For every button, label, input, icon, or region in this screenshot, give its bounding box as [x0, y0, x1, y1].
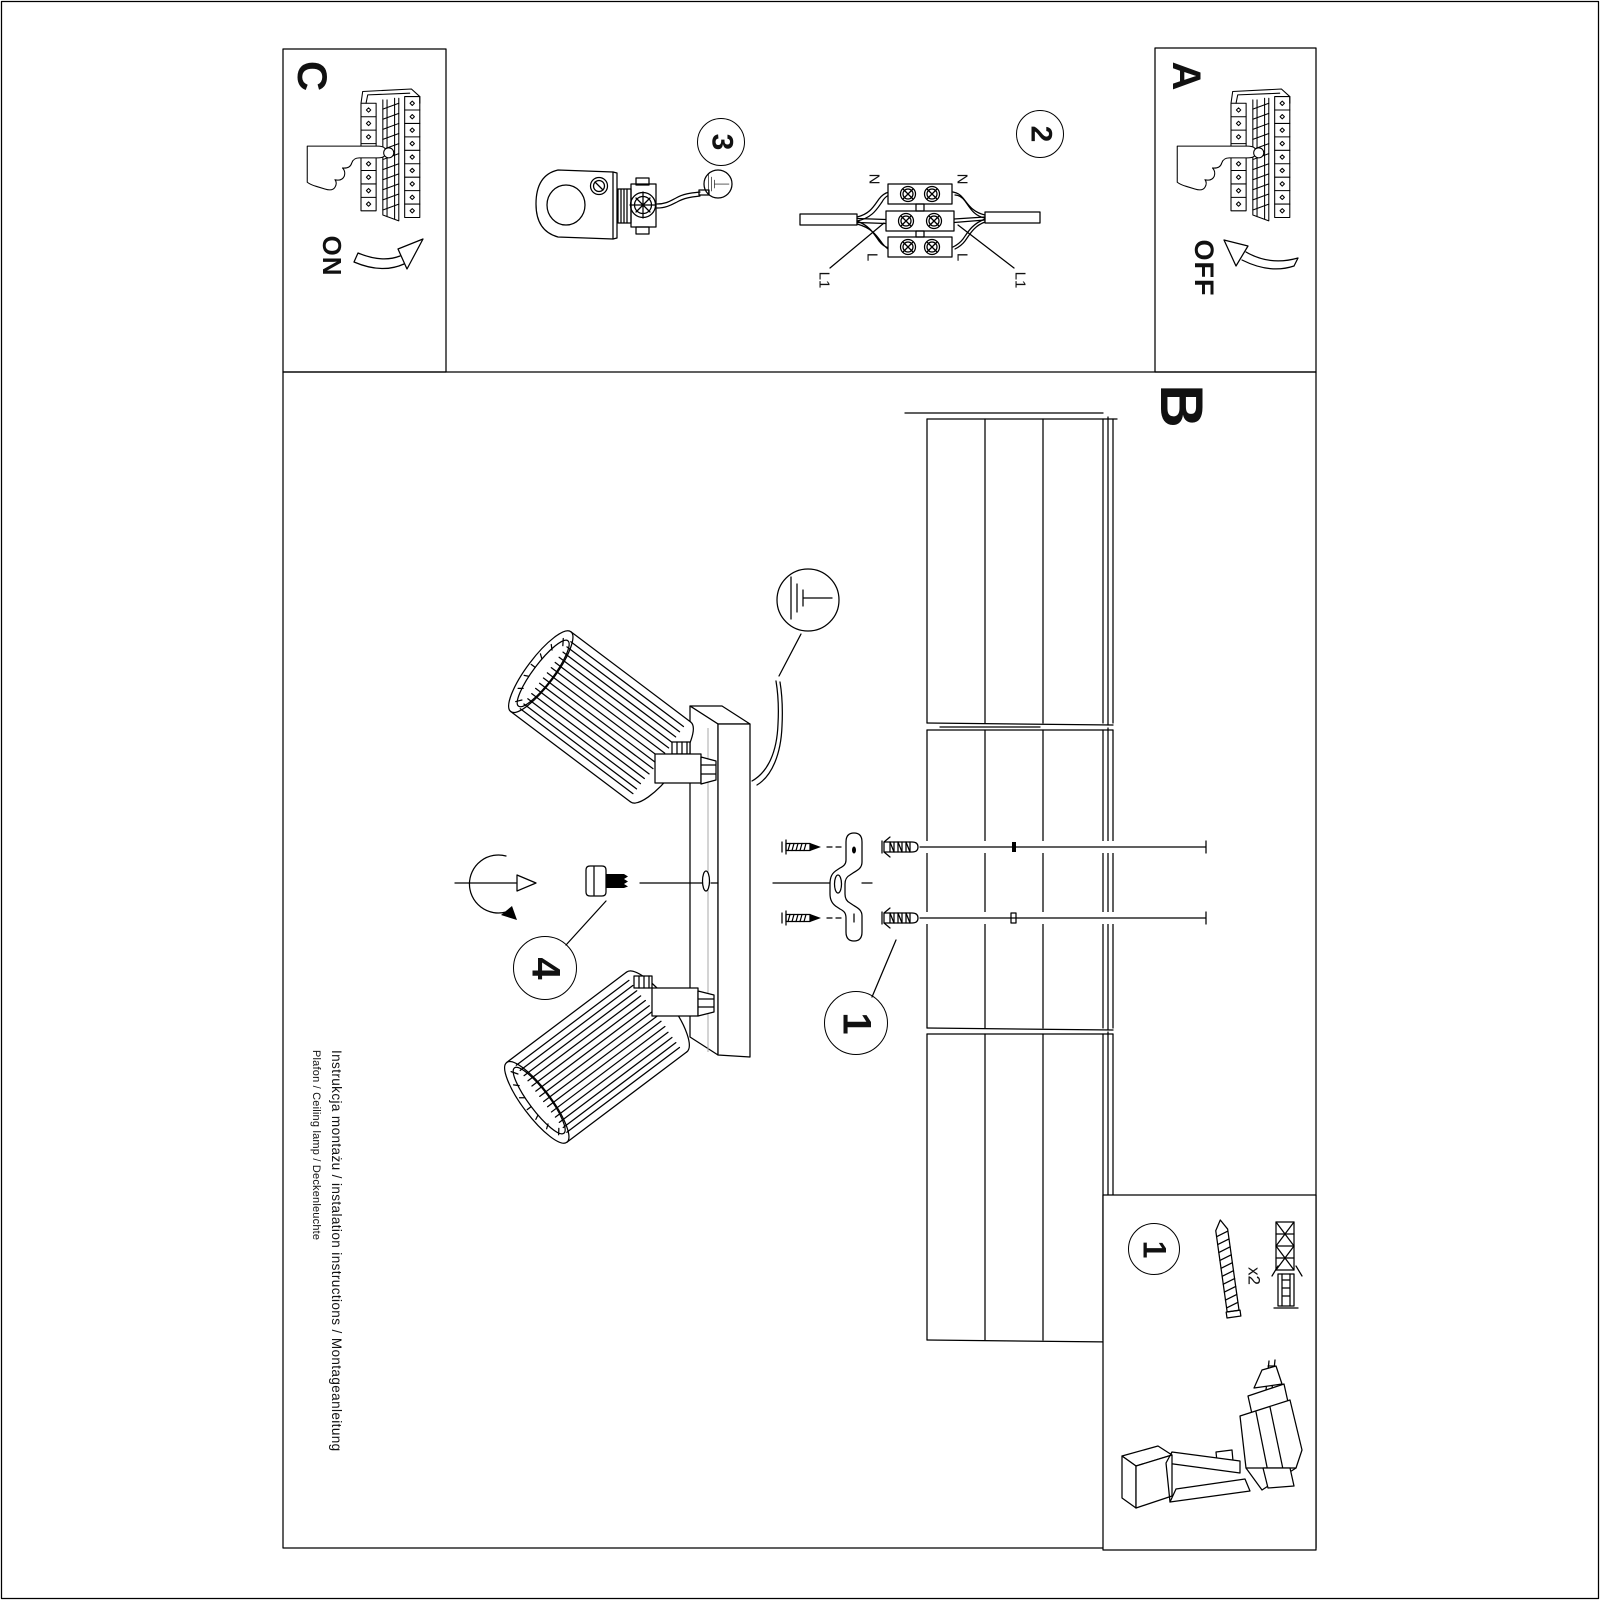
line-art: N N L L L1 L1 x2 — [0, 0, 1600, 1600]
fuse-box-on — [307, 89, 420, 221]
plate-hole — [703, 871, 710, 891]
footer-subtitle: Plafon / Ceiling lamp / Deckenleuchte — [310, 1050, 322, 1240]
l1-leader-right — [958, 225, 1014, 268]
fuse-box-off — [1177, 89, 1290, 221]
lamp-holder-drawing — [536, 170, 709, 239]
panel-a-label: A — [1164, 54, 1208, 98]
on-label: ON — [306, 230, 358, 282]
earth-wire — [752, 569, 839, 785]
wire-label-l1-right: L1 — [1012, 272, 1029, 289]
step-3-number: 3 — [704, 134, 738, 151]
off-label: OFF — [1162, 226, 1246, 310]
terminal-label-l-right: L — [954, 253, 971, 261]
step-4-badge: 4 — [513, 936, 577, 1000]
spot-head-top — [500, 623, 716, 811]
l1-leader-left — [830, 223, 884, 268]
terminal-block-drawing — [800, 184, 1040, 268]
step-3-badge: 3 — [697, 118, 745, 166]
panel-b-label: B — [1150, 374, 1214, 438]
fixing-screw-drawing — [455, 855, 718, 945]
earth-ground-icon — [704, 170, 732, 198]
instruction-sheet: N N L L L1 L1 x2 C A B ON OFF 3 2 4 1 1 … — [0, 0, 1600, 1600]
screw-centerlines — [920, 841, 1206, 924]
cable-left — [800, 214, 857, 225]
panel-c-label: C — [290, 54, 334, 98]
accessory-step-number: 1 — [1135, 1240, 1172, 1258]
terminal-label-n-left: N — [866, 174, 883, 185]
cable-right — [985, 212, 1040, 223]
wire-label-l1-left: L1 — [816, 272, 833, 289]
ceiling-planks — [905, 413, 1117, 1342]
quantity-label: x2 — [1245, 1267, 1264, 1285]
accessory-step-badge: 1 — [1128, 1223, 1180, 1275]
terminal-label-l-left: L — [864, 253, 881, 261]
step-2-number: 2 — [1023, 126, 1057, 143]
step-1-number: 1 — [834, 1012, 879, 1034]
step-1-badge: 1 — [824, 991, 888, 1055]
mounting-bracket-drawing — [773, 833, 918, 997]
arrow-on-icon — [354, 239, 423, 269]
step-4-number: 4 — [523, 957, 568, 979]
step-2-badge: 2 — [1016, 110, 1064, 158]
terminal-label-n-right: N — [954, 174, 971, 185]
page-border — [2, 2, 1599, 1599]
footer-title: Instrukcja montażu / instalation instruc… — [329, 1050, 344, 1452]
step1-leader — [872, 940, 896, 997]
